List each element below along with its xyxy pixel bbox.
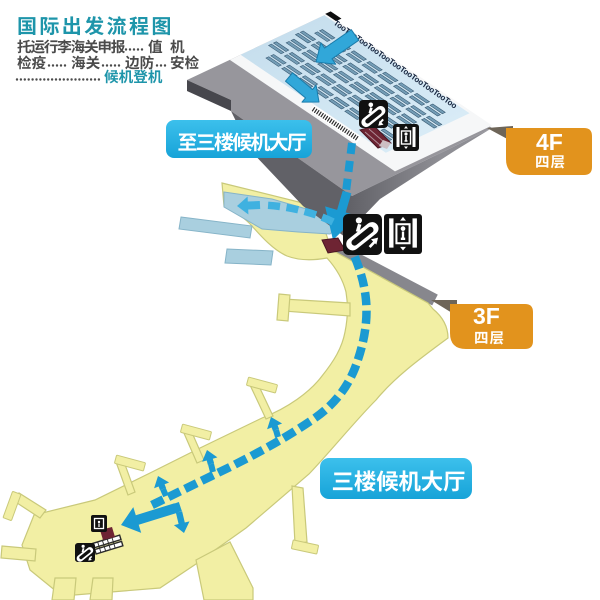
svg-text:3F: 3F bbox=[473, 303, 500, 329]
svg-text:4F: 4F bbox=[536, 129, 563, 155]
